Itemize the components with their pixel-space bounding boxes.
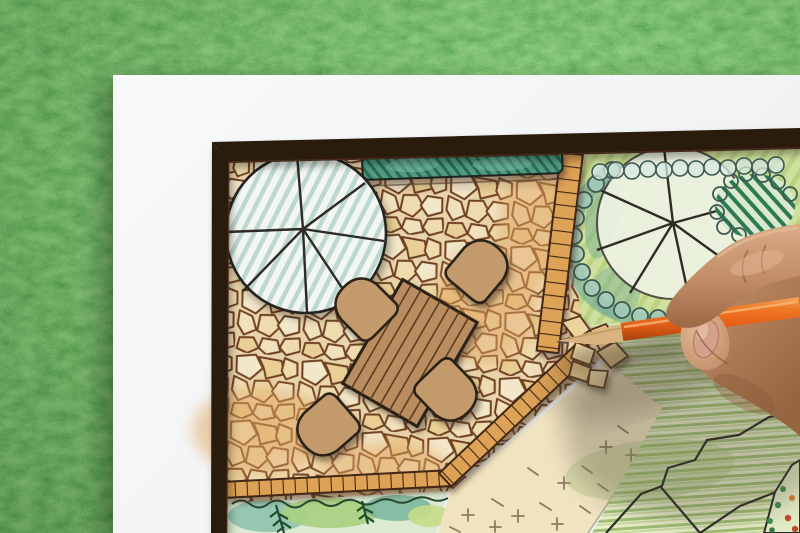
plan-drawing: [0, 0, 800, 533]
scene: [0, 0, 800, 533]
